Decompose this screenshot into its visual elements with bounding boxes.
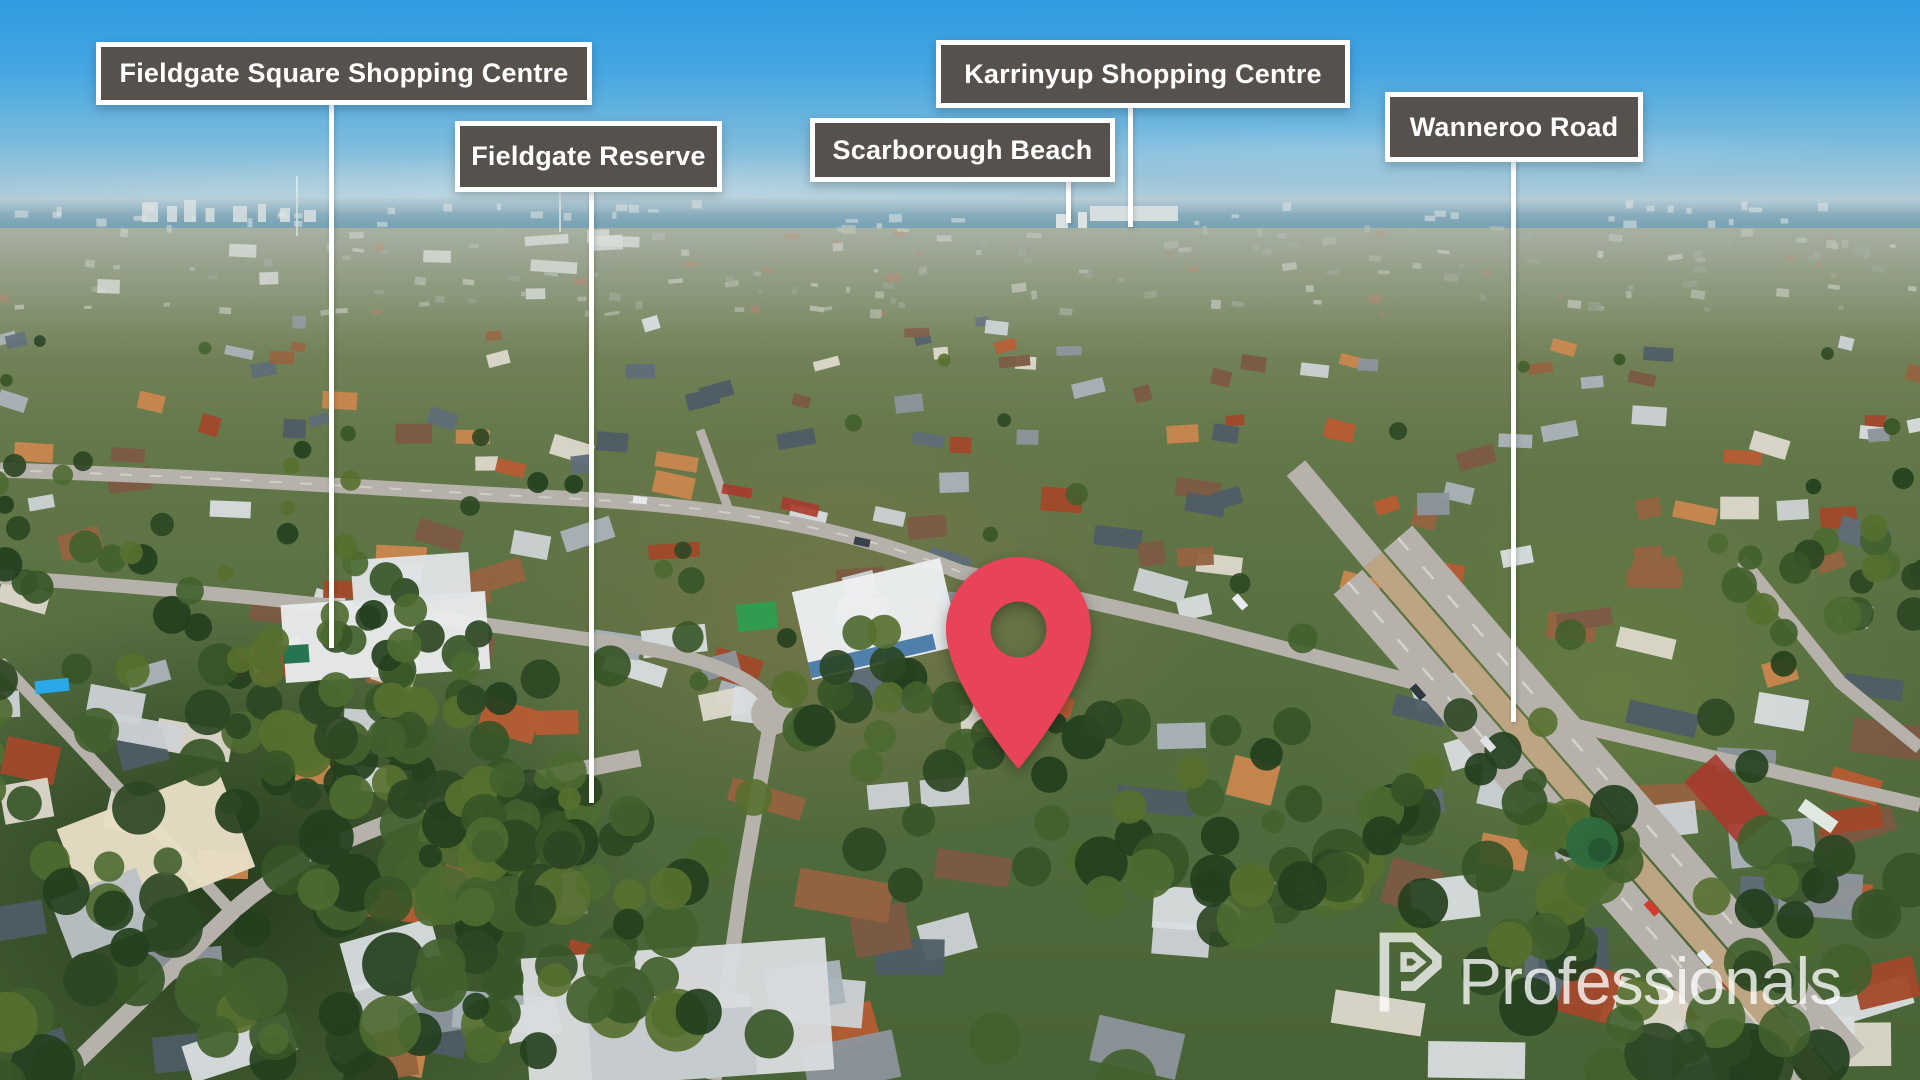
location-label-scarborough-beach: Scarborough Beach	[810, 118, 1115, 182]
label-pointer-line-karrinyup-shopping-centre	[1128, 106, 1133, 227]
location-label-fieldgate-reserve: Fieldgate Reserve	[455, 121, 722, 192]
location-label-wanneroo-road: Wanneroo Road	[1385, 92, 1643, 162]
aerial-photo: Fieldgate Square Shopping CentreFieldgat…	[0, 0, 1920, 1080]
location-pin-icon	[942, 553, 1095, 773]
label-pointer-line-fieldgate-reserve	[589, 190, 594, 803]
annotation-layer: Fieldgate Square Shopping CentreFieldgat…	[0, 0, 1920, 1080]
watermark-text: Professionals	[1458, 949, 1841, 1014]
label-pointer-line-scarborough-beach	[1066, 180, 1071, 223]
watermark: Professionals	[1378, 930, 1841, 1014]
professionals-logo-icon	[1378, 930, 1442, 1014]
pin-shape	[946, 557, 1091, 769]
location-label-karrinyup-shopping-centre: Karrinyup Shopping Centre	[936, 40, 1350, 108]
label-pointer-line-fieldgate-square-shopping-centre	[329, 104, 334, 648]
label-pointer-line-wanneroo-road	[1511, 160, 1516, 722]
location-label-fieldgate-square-shopping-centre: Fieldgate Square Shopping Centre	[96, 42, 592, 105]
